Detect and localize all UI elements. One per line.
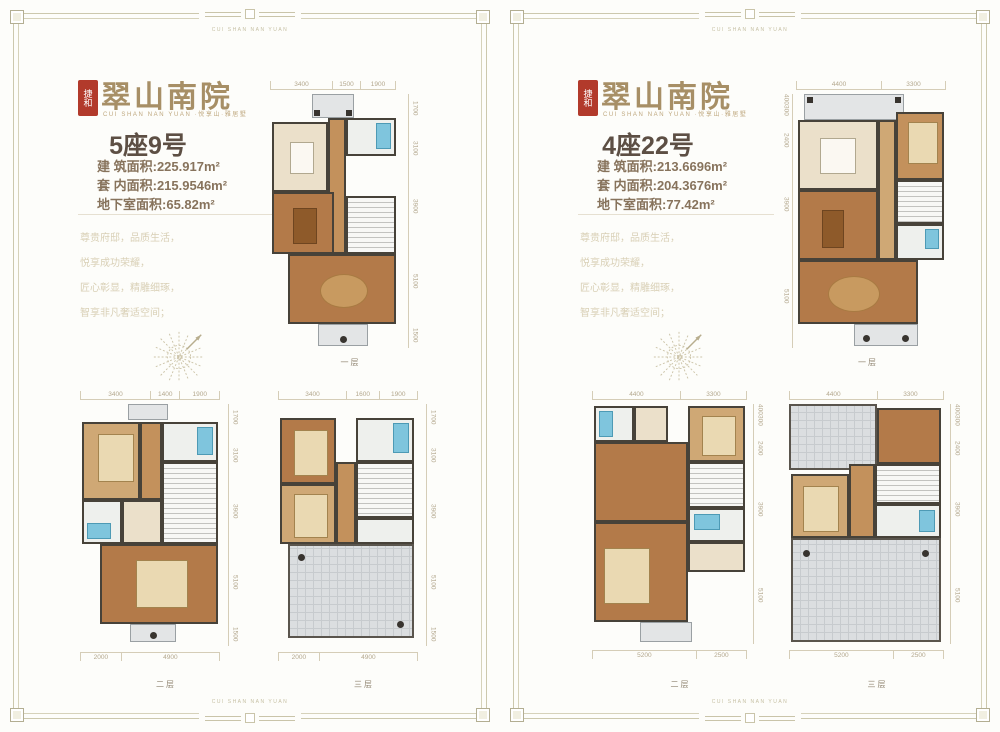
dim-label: 5100: [229, 542, 241, 623]
floor-label: 二层: [588, 679, 773, 690]
plan-drawing: [592, 404, 747, 644]
dimension-row: 4400 3300: [796, 81, 946, 90]
dim-label: 1500: [409, 323, 421, 348]
dimension-column: 400 300 2400 3900 5100: [780, 94, 793, 348]
room-stairs: [688, 462, 745, 508]
dim-label: 2500: [894, 650, 944, 659]
dim-label: 2400: [951, 426, 963, 472]
room-bedroom: [82, 422, 140, 500]
room-stairs: [162, 462, 218, 544]
dim-label: 4400: [789, 391, 878, 400]
floorplan-f1: 4400 3300 400 300 2400 3900 5100: [778, 78, 958, 368]
room-stairs: [346, 196, 396, 254]
dim-label: 3900: [229, 480, 241, 542]
room-bedroom: [280, 484, 336, 544]
dimension-row: 5200 2500: [789, 650, 944, 659]
room-hallway: [336, 462, 356, 544]
marketing-line: 匠心彰显，精雕细琢，: [80, 276, 180, 301]
room-roof-terrace: [791, 538, 941, 642]
divider: [578, 214, 774, 215]
dim-label: 2000: [80, 652, 122, 661]
dim-label: 300: [780, 105, 792, 116]
room-stairs: [356, 462, 414, 518]
marketing-line: 尊贵府邸，品质生活，: [580, 226, 680, 251]
dim-label: 5100: [409, 238, 421, 323]
marketing-line: 悦享成功荣耀，: [580, 251, 680, 276]
brand-seal: 捷和: [578, 80, 598, 116]
corner-ornament: [476, 708, 490, 722]
dimension-row: 4400 3300: [789, 391, 944, 400]
dimension-row: 3400 1500 1900: [270, 81, 396, 90]
compass-icon: [150, 328, 208, 391]
dimension-row: 5200 2500: [592, 650, 747, 659]
room-master-bedroom: [594, 522, 688, 622]
corner-ornament: [976, 10, 990, 24]
floorplan-f1: 3400 1500 1900: [268, 78, 433, 368]
room-porch: [640, 622, 692, 642]
dim-label: 3900: [409, 174, 421, 239]
room-porch: [312, 94, 354, 118]
floorplan-f3: 4400 3300 400 300 2400 3900 5100: [785, 388, 970, 690]
dimension-column: 400 300 2400 3900 5100: [753, 404, 766, 644]
border-brand-text: CUI SHAN NAN YUAN: [712, 27, 789, 33]
plan-drawing: [80, 404, 220, 646]
room-kitchen: [272, 122, 328, 192]
dim-label: 5200: [789, 650, 894, 659]
room-living: [798, 260, 918, 324]
room-balcony: [128, 404, 168, 420]
dim-label: 5100: [427, 542, 439, 623]
floor-label: 一层: [268, 357, 433, 368]
dim-label: 1500: [333, 81, 361, 90]
room-bathroom: [875, 504, 941, 538]
dim-label: 3300: [882, 81, 946, 90]
room-kitchen: [798, 120, 878, 190]
border-center-ornament: [699, 9, 801, 19]
dim-label: 5100: [951, 546, 963, 644]
room-bathroom: [82, 500, 122, 544]
plan-drawing: [789, 404, 944, 644]
area-line: 套 内面积:204.3676m²: [597, 176, 727, 195]
room-porch: [854, 324, 918, 346]
floor-label: 二层: [76, 679, 256, 690]
dim-label: 400: [951, 404, 963, 415]
dim-label: 3900: [780, 165, 792, 244]
dim-label: 2000: [278, 652, 320, 661]
corner-ornament: [476, 10, 490, 24]
room-bathroom: [594, 406, 634, 442]
dimension-row: 3400 1600 1900: [278, 391, 418, 400]
room-hallway: [594, 442, 688, 522]
room-roof-terrace: [789, 404, 877, 470]
dim-label: 3400: [270, 81, 333, 90]
dim-label: 1700: [409, 94, 421, 122]
dimension-row: 4400 3300: [592, 391, 747, 400]
dimension-column: 1700 3100 3900 5100 1500: [408, 94, 421, 348]
room-bathroom: [162, 422, 218, 462]
room-bathroom: [896, 224, 944, 260]
dimension-row: 3400 1400 1900: [80, 391, 220, 400]
dim-label: 5100: [780, 244, 792, 348]
dim-label: 400: [754, 404, 766, 415]
divider: [78, 214, 274, 215]
room-hallway: [878, 120, 896, 260]
room-bathroom: [346, 118, 396, 156]
brochure-page-unit-5-9: CUI SHAN NAN YUAN CUI SHAN NAN YUAN 捷和 翠…: [0, 0, 500, 732]
floorplan-f2: 3400 1400 1900 1700: [76, 388, 256, 690]
room-stairs: [896, 180, 944, 224]
border-center-ornament: [199, 9, 301, 19]
corner-ornament: [976, 708, 990, 722]
dim-label: 300: [951, 415, 963, 426]
room-closet: [688, 542, 745, 572]
plan-drawing: [278, 404, 418, 646]
dimension-row: 2000 4900: [278, 652, 418, 661]
dim-label: 1700: [229, 404, 241, 431]
room-living: [288, 254, 396, 324]
border-brand-text: CUI SHAN NAN YUAN: [212, 27, 289, 33]
dim-label: 2400: [754, 426, 766, 472]
floorplan-f2: 4400 3300 400 300 2400: [588, 388, 773, 690]
border-brand-text: CUI SHAN NAN YUAN: [212, 699, 289, 705]
room-bathroom: [688, 508, 745, 542]
dim-label: 4900: [122, 652, 220, 661]
room-dining: [272, 192, 334, 254]
dim-label: 3900: [427, 480, 439, 542]
dim-label: 4900: [320, 652, 418, 661]
corner-ornament: [510, 708, 524, 722]
brand-subtitle: CUI SHAN NAN YUAN ·悦享山·雅居墅: [603, 109, 748, 118]
marketing-copy: 尊贵府邸，品质生活， 悦享成功荣耀， 匠心彰显，精雕细琢， 智享非凡奢适空间；: [580, 226, 680, 326]
plan-drawing: [270, 94, 398, 348]
area-line: 地下室面积:77.42m²: [597, 195, 727, 214]
dim-label: 4400: [592, 391, 681, 400]
room-study: [798, 190, 878, 260]
marketing-line: 尊贵府邸，品质生活，: [80, 226, 180, 251]
dim-label: 3100: [427, 431, 439, 480]
marketing-line: 智享非凡奢适空间；: [580, 301, 680, 326]
brochure-page-unit-4-22: CUI SHAN NAN YUAN CUI SHAN NAN YUAN 捷和 翠…: [500, 0, 1000, 732]
dim-label: 3400: [80, 391, 151, 400]
floor-label: 三层: [785, 679, 970, 690]
marketing-copy: 尊贵府邸，品质生活， 悦享成功荣耀， 匠心彰显，精雕细琢， 智享非凡奢适空间；: [80, 226, 180, 326]
room-bedroom: [688, 406, 745, 462]
brand-seal: 捷和: [78, 80, 98, 116]
room-closet: [140, 422, 162, 500]
plan-drawing: [796, 94, 946, 348]
room-bedroom: [877, 408, 941, 464]
floorplan-f3: 3400 1600 1900 1700 3100 3900 5: [274, 388, 454, 690]
dim-label: 5200: [592, 650, 697, 659]
dim-label: 300: [754, 415, 766, 426]
dim-label: 4400: [796, 81, 882, 90]
floor-label: 一层: [778, 357, 958, 368]
dim-label: 3300: [681, 391, 747, 400]
dim-label: 1900: [380, 391, 418, 400]
dim-label: 400: [780, 94, 792, 105]
dim-label: 1900: [361, 81, 396, 90]
dim-label: 1600: [347, 391, 380, 400]
corner-ornament: [10, 708, 24, 722]
area-line: 建 筑面积:225.917m²: [97, 157, 227, 176]
dimension-column: 400 300 2400 3900 5100: [950, 404, 963, 644]
room-bathroom: [356, 418, 414, 462]
compass-icon: [650, 328, 708, 391]
dim-label: 3900: [951, 472, 963, 547]
dim-label: 2400: [780, 116, 792, 165]
corner-ornament: [10, 10, 24, 24]
dim-label: 1500: [229, 622, 241, 646]
room-roof-terrace: [288, 544, 414, 638]
dim-label: 3300: [878, 391, 944, 400]
marketing-line: 智享非凡奢适空间；: [80, 301, 180, 326]
corner-ornament: [510, 10, 524, 24]
area-info: 建 筑面积:225.917m² 套 内面积:215.9546m² 地下室面积:6…: [97, 157, 227, 214]
marketing-line: 匠心彰显，精雕细琢，: [580, 276, 680, 301]
room-hallway: [122, 500, 162, 544]
dim-label: 3900: [754, 472, 766, 547]
dimension-row: 2000 4900: [80, 652, 220, 661]
area-line: 建 筑面积:213.6696m²: [597, 157, 727, 176]
area-info: 建 筑面积:213.6696m² 套 内面积:204.3676m² 地下室面积:…: [597, 157, 727, 214]
room-hallway: [849, 464, 875, 538]
room-closet: [634, 406, 668, 442]
dim-label: 3100: [409, 122, 421, 173]
room-stairs: [875, 464, 941, 504]
dim-label: 3100: [229, 431, 241, 480]
dim-label: 1900: [180, 391, 220, 400]
dim-label: 5100: [754, 546, 766, 644]
dim-label: 1500: [427, 622, 439, 646]
room-bedroom: [896, 112, 944, 180]
dim-label: 3400: [278, 391, 347, 400]
room-bathroom: [356, 518, 414, 544]
room-porch: [318, 324, 368, 346]
dimension-column: 1700 3100 3900 5100 1500: [228, 404, 241, 646]
border-brand-text: CUI SHAN NAN YUAN: [712, 699, 789, 705]
floor-label: 三层: [274, 679, 454, 690]
room-bedroom: [280, 418, 336, 484]
brand-subtitle: CUI SHAN NAN YUAN ·悦享山·雅居墅: [103, 109, 248, 118]
border-center-ornament: [699, 713, 801, 723]
dim-label: 2500: [697, 650, 747, 659]
dim-label: 1400: [151, 391, 180, 400]
dimension-column: 1700 3100 3900 5100 1500: [426, 404, 439, 646]
marketing-line: 悦享成功荣耀，: [80, 251, 180, 276]
room-terrace: [804, 94, 904, 120]
room-master-bedroom: [100, 544, 218, 624]
room-bedroom: [791, 474, 849, 538]
room-porch: [130, 624, 176, 642]
dim-label: 1700: [427, 404, 439, 431]
border-center-ornament: [199, 713, 301, 723]
area-line: 套 内面积:215.9546m²: [97, 176, 227, 195]
area-line: 地下室面积:65.82m²: [97, 195, 227, 214]
